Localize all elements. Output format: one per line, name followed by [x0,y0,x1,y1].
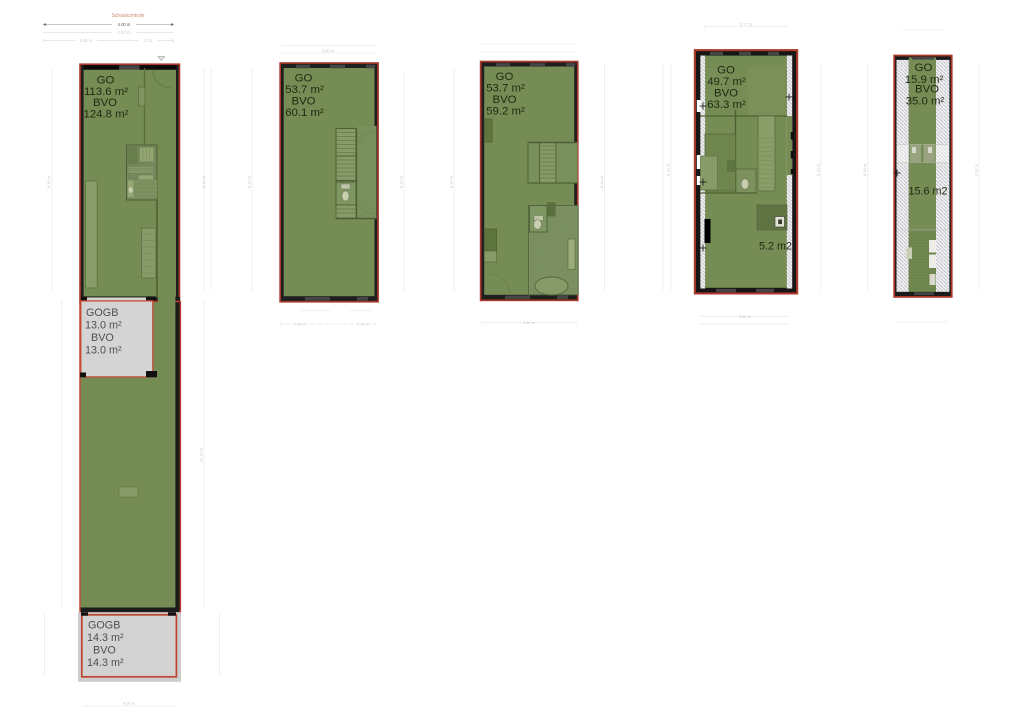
svg-text:BVO: BVO [91,332,114,344]
svg-text:BVO: BVO [492,94,516,106]
svg-text:GO: GO [717,65,735,77]
svg-text:1.96 m: 1.96 m [80,38,93,43]
svg-text:1.98 m: 1.98 m [294,322,307,327]
svg-text:35.0 m²: 35.0 m² [906,95,945,107]
svg-text:13.0 m²: 13.0 m² [85,320,122,332]
svg-text:GO: GO [97,75,115,87]
svg-text:GO: GO [295,73,313,85]
svg-text:8.10 m: 8.10 m [247,175,252,188]
svg-text:BVO: BVO [915,83,939,95]
svg-text:1.10 m: 1.10 m [357,322,370,327]
svg-text:5.2 m2: 5.2 m2 [759,241,792,253]
svg-text:Schaalcontrole: Schaalcontrole [111,13,144,19]
svg-text:5.60 m: 5.60 m [523,320,536,325]
svg-text:60.1 m²: 60.1 m² [285,107,324,119]
svg-text:BVO: BVO [93,97,117,109]
svg-text:5.60 m: 5.60 m [739,314,752,319]
svg-text:124.8 m²: 124.8 m² [84,108,129,120]
svg-text:1.10: 1.10 [144,38,153,43]
svg-text:8.10 m: 8.10 m [815,163,820,176]
svg-text:8.10 m: 8.10 m [449,175,454,188]
svg-text:BVO: BVO [291,96,315,108]
svg-text:53.7 m²: 53.7 m² [285,84,324,96]
svg-text:8.10 m: 8.10 m [599,175,604,188]
svg-text:4.00 m: 4.00 m [117,30,131,35]
svg-text:14.3 m²: 14.3 m² [87,632,124,644]
svg-text:5.60 m: 5.60 m [322,48,335,53]
svg-text:8.10 m: 8.10 m [46,175,51,188]
svg-text:BVO: BVO [714,88,738,100]
svg-text:GO: GO [496,71,514,83]
svg-text:GOGB: GOGB [86,307,118,319]
svg-text:15.6 m2: 15.6 m2 [909,186,948,198]
svg-text:113.6 m²: 113.6 m² [84,86,128,98]
svg-text:59.2 m²: 59.2 m² [486,106,525,118]
svg-text:8.10 m: 8.10 m [666,163,671,176]
svg-text:8.10 m: 8.10 m [974,163,979,176]
svg-text:8.10 m: 8.10 m [862,163,867,176]
svg-text:GO: GO [915,62,933,74]
svg-text:GOGB: GOGB [88,620,120,632]
svg-text:4.00 m: 4.00 m [118,22,131,27]
svg-text:14.3 m²: 14.3 m² [87,657,124,669]
svg-text:53.7 m²: 53.7 m² [486,83,525,95]
svg-text:BVO: BVO [93,645,116,657]
svg-text:49.7 m²: 49.7 m² [707,76,746,88]
svg-text:10.76 m: 10.76 m [199,447,204,462]
svg-text:13.0 m²: 13.0 m² [85,345,122,357]
svg-text:8.10 m: 8.10 m [201,175,206,188]
svg-text:63.3 m²: 63.3 m² [707,99,746,111]
svg-text:4.06 m: 4.06 m [123,701,136,706]
svg-text:8.10 m: 8.10 m [399,175,404,188]
svg-text:5.77 m: 5.77 m [740,21,753,26]
